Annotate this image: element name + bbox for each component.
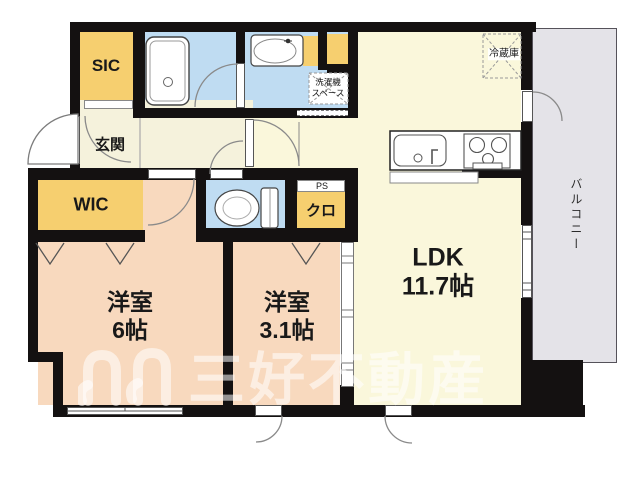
wall-toilet-closet-bottom [196,228,358,242]
wall-closet-right [345,180,358,242]
label-ldk-size: 11.7帖 [402,273,474,302]
wall-washroom-right [348,32,358,118]
label-ldk-name: LDK [412,244,463,273]
wall-wic-bottom [28,230,145,242]
wall-ldk-right-2 [521,122,532,225]
label-sic: SIC [92,56,120,76]
wall-toilet-closet-div [285,180,297,228]
label-bedroom2-size: 3.1帖 [260,317,315,343]
ldk-right-window [522,225,532,298]
ldk-corridor [253,118,354,168]
bedroom1-window [67,407,183,415]
wall-bottom-right-mass [521,360,583,417]
floorplan: SIC 玄関 WIC 洋室 6帖 洋室 3.1帖 LDK 11.7帖 クロ PS… [0,0,640,480]
sliding-door [341,242,354,387]
wall-genkan-wic [28,168,145,180]
cabinet-a [303,36,318,66]
ldk-door-leaf [385,405,412,416]
room-bathroom [143,32,236,108]
label-genkan: 玄関 [95,136,125,153]
wall-bath-divider [236,28,245,64]
label-bedroom1-name: 洋室 [107,289,153,315]
washroom-hatch [297,110,348,116]
wall-kitchen-stub [462,167,521,178]
wall-wic-left [28,168,38,360]
ldk-exterior-door-arc [385,416,412,443]
hall-ldk-door-leaf [245,119,254,167]
entrance-door-leaf [68,116,80,164]
bedroom1-door-leaf [148,169,196,179]
room-bedroom1-ext [143,180,196,242]
room-toilet [206,180,285,228]
label-washer-2: スペース [312,89,345,99]
bedroom2-door-leaf [255,405,282,416]
wall-left-upper [70,22,80,118]
label-washer-1: 洗濯機 [315,78,341,88]
label-pipe-space: PS [316,181,328,191]
bedroom2-exterior-door-arc [256,416,282,442]
label-wic: WIC [74,195,109,216]
room-ldk [354,32,521,405]
label-balcony: バルコニー [568,178,582,253]
wall-ldk-right-1 [521,32,532,90]
wall-slide-stub [340,385,354,407]
label-bedroom1-size: 6帖 [112,317,148,343]
label-fridge: 冷蔵庫 [488,48,520,60]
bath-door-leaf [236,63,245,108]
wall-sic-right [133,22,145,110]
wall-bedroom-divider [223,242,233,407]
label-bedroom2-name: 洋室 [264,289,310,315]
cabinet-b [327,34,348,66]
label-closet: クロ [306,202,336,219]
wall-cabinet-stub-v [318,22,327,70]
toilet-door-leaf [210,169,243,179]
balcony-door-leaf [522,91,533,122]
sic-opening [84,100,133,109]
